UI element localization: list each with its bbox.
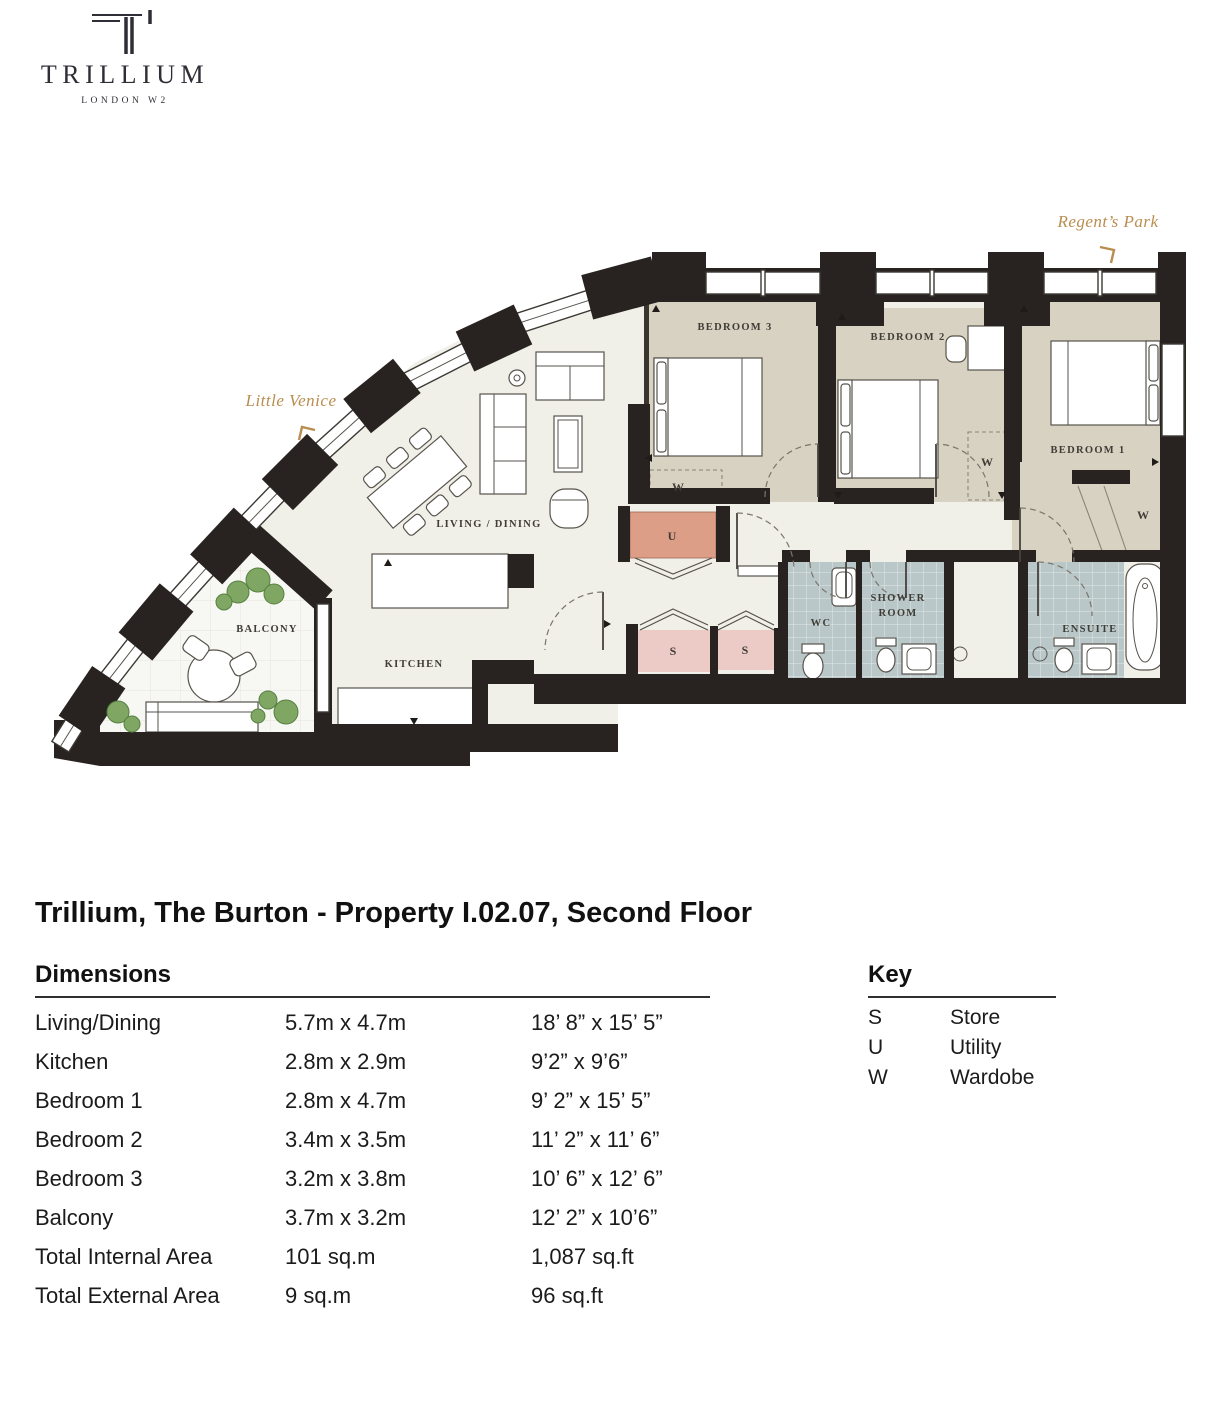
store2-symbol: S xyxy=(742,643,749,657)
shower-label-1: SHOWER xyxy=(870,593,925,604)
ensuite-label: ENSUITE xyxy=(1062,624,1117,635)
dimensions-table: Dimensions Living/Dining 5.7m x 4.7m 18’… xyxy=(35,961,710,1315)
regents-park-pointer-icon xyxy=(1100,247,1114,263)
page-title: Trillium, The Burton - Property I.02.07,… xyxy=(35,897,752,930)
key-row: S Store xyxy=(868,1003,1056,1033)
wc-label: WC xyxy=(811,618,832,629)
table-row: Total External Area 9 sq.m 96 sq.ft xyxy=(35,1276,710,1315)
key-table: Key S Store U Utility W Wardobe xyxy=(868,961,1056,1093)
wardrobe2-symbol: W xyxy=(981,455,993,469)
table-row: Balcony 3.7m x 3.2m 12’ 2” x 10’6” xyxy=(35,1198,710,1237)
key-heading: Key xyxy=(868,961,1056,998)
table-row: Bedroom 3 3.2m x 3.8m 10’ 6” x 12’ 6” xyxy=(35,1159,710,1198)
regents-park-label: Regent’s Park xyxy=(1056,212,1158,231)
shower-label-2: ROOM xyxy=(878,608,917,619)
table-row: Bedroom 2 3.4m x 3.5m 11’ 2” x 11’ 6” xyxy=(35,1120,710,1159)
table-row: Kitchen 2.8m x 2.9m 9’2” x 9’6” xyxy=(35,1042,710,1081)
dimensions-heading: Dimensions xyxy=(35,961,710,998)
bedroom1-floor xyxy=(1012,300,1162,562)
wardrobe1-symbol: W xyxy=(1137,508,1149,522)
table-row: Total Internal Area 101 sq.m 1,087 sq.ft xyxy=(35,1237,710,1276)
key-row: W Wardobe xyxy=(868,1063,1056,1093)
floorplan-page: TRILLIUM LONDON W2 xyxy=(0,0,1231,1424)
table-row: Living/Dining 5.7m x 4.7m 18’ 8” x 15’ 5… xyxy=(35,1003,710,1042)
floor-plan: LIVING / DINING KITCHEN BALCONY BEDROOM … xyxy=(0,0,1231,860)
kitchen-label: KITCHEN xyxy=(385,659,444,670)
key-row: U Utility xyxy=(868,1033,1056,1063)
wardrobe3-symbol: W xyxy=(672,480,684,494)
store1-symbol: S xyxy=(670,644,677,658)
utility-symbol: U xyxy=(668,529,677,543)
table-row: Bedroom 1 2.8m x 4.7m 9’ 2” x 15’ 5” xyxy=(35,1081,710,1120)
bedroom2-label: BEDROOM 2 xyxy=(871,332,946,343)
living-label: LIVING / DINING xyxy=(436,519,541,530)
balcony-label: BALCONY xyxy=(236,624,298,635)
bedroom1-label: BEDROOM 1 xyxy=(1051,445,1126,456)
little-venice-label: Little Venice xyxy=(244,391,336,410)
bedroom3-label: BEDROOM 3 xyxy=(698,322,773,333)
